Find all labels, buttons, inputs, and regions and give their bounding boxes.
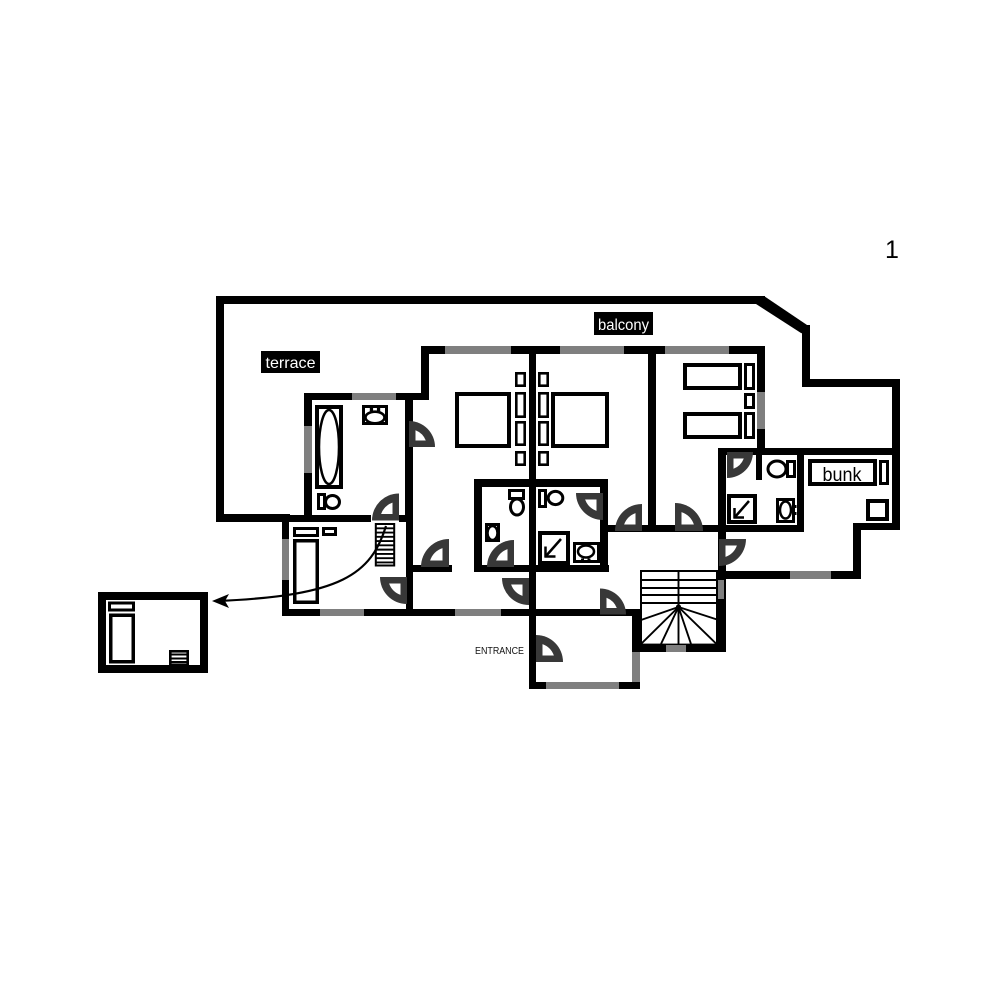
svg-text:1: 1: [885, 236, 899, 264]
svg-text:terrace: terrace: [266, 355, 316, 372]
svg-text:balcony: balcony: [598, 317, 649, 334]
svg-text:bunk: bunk: [823, 465, 862, 486]
svg-text:ENTRANCE: ENTRANCE: [475, 645, 524, 657]
